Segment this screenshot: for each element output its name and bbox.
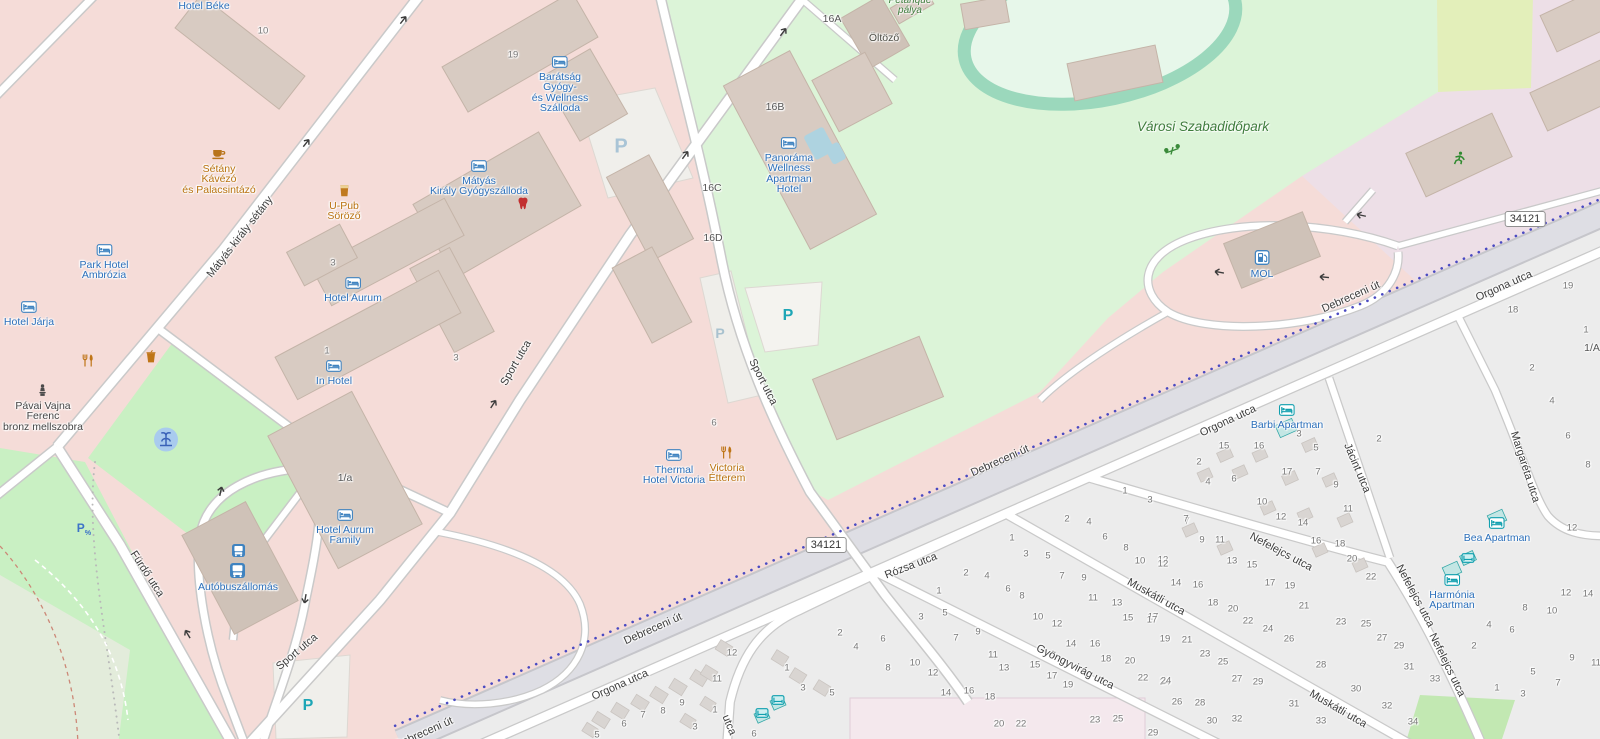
house-number: 22 <box>1366 572 1377 583</box>
bus2-icon <box>230 544 246 581</box>
house-number: 7 <box>1059 571 1064 582</box>
house-number: 11 <box>1343 504 1353 515</box>
setany-kavezo-es-palacsintazo[interactable]: SétányKávézóés Palacsintázó <box>182 148 256 195</box>
barbi-apartman[interactable]: Barbi Apartman <box>1251 404 1323 430</box>
street-label: Mátyás király sétány <box>205 194 276 280</box>
house-number: 11 <box>712 674 722 685</box>
house-number: 4 <box>984 571 989 582</box>
house-number: 6 <box>1102 532 1107 543</box>
house-number: 12 <box>1052 619 1063 630</box>
street-label: Rózsa utca <box>883 551 939 582</box>
house-number: 3 <box>1520 689 1525 700</box>
street-label: Debreceni út <box>969 443 1031 479</box>
house-number: 24 <box>1161 676 1172 687</box>
varosi-szabadidopark-label: Városi Szabadidőpark <box>1137 119 1269 134</box>
house-number: 1 <box>1583 325 1588 336</box>
house-number: 16A <box>823 13 842 25</box>
house-number: 20 <box>994 719 1005 730</box>
parking-icon[interactable]: P <box>715 325 724 341</box>
house-number: 6 <box>1231 474 1236 485</box>
house-number: 12 <box>928 668 939 679</box>
house-number: 2 <box>1471 641 1476 652</box>
house-number: 2 <box>1064 514 1069 525</box>
house-number: 5 <box>1313 443 1318 454</box>
house-number: 20 <box>1125 656 1136 667</box>
house-number: 17 <box>1147 615 1158 626</box>
pitch-runner-poi[interactable] <box>1453 151 1466 169</box>
house-number: 27 <box>1377 633 1388 644</box>
house-number: 12 <box>1276 512 1287 523</box>
poi-label-line: Ferenc <box>3 411 83 422</box>
parking-icon[interactable]: P <box>614 136 627 159</box>
house-number: 16D <box>703 232 722 244</box>
house-number: 7 <box>1315 467 1320 478</box>
parking-icon[interactable]: P <box>303 697 314 715</box>
poi-label-line: Söröző <box>327 211 360 222</box>
house-number: 2 <box>963 568 968 579</box>
house-number: 1 <box>712 705 717 716</box>
house-number: 5 <box>594 730 599 739</box>
hotel-jarja[interactable]: Hotel Járja <box>4 301 54 327</box>
cafe-icon <box>212 148 226 163</box>
house-number: 33 <box>1316 716 1327 727</box>
house-number: 3 <box>692 722 697 733</box>
thermal-hotel-victoria[interactable]: ThermalHotel Victoria <box>643 449 705 486</box>
house-number: 29 <box>1394 641 1405 652</box>
poi-label-line: Kávézó <box>182 174 256 185</box>
house-number: 10 <box>1033 612 1044 623</box>
house-number: 5 <box>1045 551 1050 562</box>
house-number: 18 <box>1208 598 1219 609</box>
map-labels-layer: Mátyás király sétánySport utcaSport utca… <box>0 0 1600 739</box>
road-ref-badge: 34121 <box>806 537 847 553</box>
house-number: 20 <box>1347 554 1358 565</box>
bedt-icon <box>1279 404 1295 419</box>
house-number: 9 <box>679 698 684 709</box>
house-number: 23 <box>1200 649 1211 660</box>
house-number: 2 <box>1196 457 1201 468</box>
bedt-icon <box>1444 574 1460 589</box>
house-number: 6 <box>1509 625 1514 636</box>
pavai-vajna-ferenc-bronz-mellszobra[interactable]: Pávai VajnaFerencbronz mellszobra <box>3 384 83 432</box>
house-number: 14 <box>1298 518 1309 529</box>
house-number: 1 <box>324 346 329 357</box>
street-label: Orgona utca <box>590 667 650 703</box>
house-number: 9 <box>1199 535 1204 546</box>
poi-label-line: Bea Apartman <box>1464 533 1531 544</box>
house-number: 19 <box>1063 680 1074 691</box>
house-number: 8 <box>1019 591 1024 602</box>
house-number: 16 <box>1193 580 1204 591</box>
house-number: 8 <box>1522 603 1527 614</box>
house-number: 1 <box>784 663 789 674</box>
street-label: Margaréta utca <box>1508 430 1542 504</box>
house-number: 18 <box>985 692 996 703</box>
poi-label-line: Hotel Béke <box>178 1 229 12</box>
street-label: Orgona utca <box>1474 268 1534 304</box>
house-number: 25 <box>1218 657 1229 668</box>
house-number: 1/A <box>1584 342 1600 354</box>
u-pub-sorozo[interactable]: U-PubSöröző <box>327 184 360 222</box>
dentist-poi[interactable] <box>518 197 529 214</box>
poi-label-line: Hotel Járja <box>4 317 54 328</box>
poi-label-line: Hotel <box>765 184 813 195</box>
house-number: 18 <box>1101 654 1112 665</box>
house-number: 4 <box>1205 477 1210 488</box>
house-number: 24 <box>1263 624 1274 635</box>
house-number: 6 <box>621 719 626 730</box>
parking-icon[interactable]: P <box>783 307 794 325</box>
house-number: 3 <box>453 353 458 364</box>
poi-label-line: MOL <box>1251 269 1274 280</box>
house-number: 33 <box>1430 674 1441 685</box>
street-label: Sport utca <box>746 357 779 407</box>
poi-label-line: Hotel Victoria <box>643 475 705 486</box>
house-number: 11 <box>1591 658 1600 669</box>
baratsag-gyogy-es-wellness-szalloda[interactable]: BarátságGyógy-és WellnessSzálloda <box>532 56 588 114</box>
house-number: 9 <box>975 627 980 638</box>
house-number: 29 <box>1253 677 1264 688</box>
restaurant-poi[interactable] <box>82 354 94 371</box>
street-label: Fürdő utca <box>128 549 167 600</box>
harmonia-apartman[interactable]: HarmóniaApartman <box>1429 574 1475 611</box>
house-number: 1 <box>1122 486 1127 497</box>
poi-label-line: Family <box>316 535 374 546</box>
area-label-line: Városi Szabadidőpark <box>1137 119 1269 134</box>
house-number: 28 <box>1316 660 1327 671</box>
poi-label-line: In Hotel <box>316 376 352 387</box>
house-number: 16 <box>964 686 975 697</box>
house-number: 3 <box>1147 495 1152 506</box>
street-label: Debreceni út <box>1320 279 1382 315</box>
bed-icon <box>345 277 361 292</box>
house-number: 4 <box>1486 620 1491 631</box>
autobuszallomas[interactable]: Autóbuszállomás <box>198 544 278 592</box>
house-number: 9 <box>1569 653 1574 664</box>
house-number: 4 <box>853 642 858 653</box>
house-number: 9 <box>1081 573 1086 584</box>
street-label: Debreceni út <box>393 715 455 739</box>
house-number: 16 <box>1090 639 1101 650</box>
house-number: 8 <box>660 706 665 717</box>
house-number: 5 <box>1530 667 1535 678</box>
apartment-poi[interactable] <box>772 695 785 709</box>
house-number: 13 <box>1112 598 1123 609</box>
street-label: Jácint utca <box>1341 441 1373 494</box>
house-number: 16 <box>1311 536 1322 547</box>
house-number: 22 <box>1138 673 1149 684</box>
house-number: 10 <box>1547 606 1558 617</box>
house-number: 10 <box>258 26 269 37</box>
house-number: 25 <box>1113 714 1124 725</box>
house-number: 8 <box>885 663 890 674</box>
house-number: 14 <box>1066 639 1077 650</box>
house-number: 14 <box>1583 589 1594 600</box>
poi-label-line: Szálloda <box>532 103 588 114</box>
house-number: 23 <box>1090 715 1101 726</box>
fountain-icon <box>154 427 179 455</box>
poi-label-line: Gyógy- <box>532 82 588 93</box>
house-number: 11 <box>1215 535 1225 546</box>
house-number: 23 <box>1336 617 1347 628</box>
house-number: 25 <box>1361 619 1372 630</box>
poi-label-line: Hotel Aurum <box>324 293 382 304</box>
house-number: 8 <box>1123 543 1128 554</box>
house-number: 12 <box>727 648 738 659</box>
hotel-beke[interactable]: Hotel Béke <box>178 1 229 12</box>
tooth-icon <box>518 197 529 213</box>
poi-label-line: Wellness <box>765 163 813 174</box>
poi-label-line: Király Gyógyszálloda <box>430 186 528 197</box>
bedt-icon <box>1489 517 1505 532</box>
house-number: 29 <box>1148 728 1159 739</box>
house-number: 1 <box>1494 683 1499 694</box>
house-number: 9 <box>1333 480 1338 491</box>
street-label: Sport utca <box>274 631 320 672</box>
house-number: 30 <box>1351 684 1362 695</box>
house-number: 19 <box>508 50 519 61</box>
house-number: 7 <box>1555 678 1560 689</box>
petanque-palya-label: Petanquepálya <box>889 0 932 16</box>
house-number: 13 <box>1227 556 1238 567</box>
house-number: 6 <box>1565 431 1570 442</box>
house-number: 12 <box>1561 588 1572 599</box>
house-number: 5 <box>942 608 947 619</box>
house-number: 12 <box>1567 523 1578 534</box>
fastfood-poi[interactable] <box>146 350 156 367</box>
house-number: 13 <box>999 663 1010 674</box>
poi-label-line: és Palacsintázó <box>182 185 256 196</box>
house-number: 3 <box>1023 549 1028 560</box>
runner-icon <box>1453 151 1466 168</box>
house-number: 15 <box>1247 560 1258 571</box>
house-number: 16C <box>702 182 721 194</box>
playground-icon <box>1164 143 1181 159</box>
house-number: 21 <box>1299 601 1310 612</box>
restaurant-icon <box>721 446 733 462</box>
street-label: Nefelejcs utca <box>1426 631 1467 698</box>
house-number: 15 <box>1123 613 1134 624</box>
house-number: 2 <box>1529 363 1534 374</box>
house-number: 15 <box>1219 441 1230 452</box>
poi-label-line: bronz mellszobra <box>3 422 83 433</box>
bed-icon <box>471 160 487 175</box>
mol[interactable]: MOL <box>1251 250 1274 279</box>
house-number: 11 <box>988 650 998 661</box>
street-label: Debreceni út <box>622 611 684 647</box>
house-number: 30 <box>1207 716 1218 727</box>
house-number: 26 <box>1284 634 1295 645</box>
house-number: 10 <box>910 658 921 669</box>
house-number: 11 <box>1088 593 1098 604</box>
poi-label-line: Ambrózia <box>79 270 128 281</box>
house-number: 4 <box>1549 396 1554 407</box>
house-number: 17 <box>1265 578 1276 589</box>
house-number: 6 <box>751 729 756 739</box>
house-number: 18 <box>1508 305 1519 316</box>
house-number: 27 <box>1232 674 1243 685</box>
bed-icon <box>552 56 568 71</box>
poi-label-line: Öltöző <box>869 33 899 44</box>
house-number: 10 <box>1135 556 1146 567</box>
house-number: 3 <box>800 683 805 694</box>
hotel-aurum-family[interactable]: Hotel AurumFamily <box>316 509 374 546</box>
bed-icon <box>666 449 682 464</box>
area-label-line: pálya <box>889 6 932 16</box>
house-number: 32 <box>1232 714 1243 725</box>
house-number: 31 <box>1404 662 1415 673</box>
panorama-wellness-apartman-hotel[interactable]: PanorámaWellnessApartmanHotel <box>765 137 813 195</box>
bed-icon <box>337 509 353 524</box>
house-number: 22 <box>1016 719 1027 730</box>
victoria-etterem[interactable]: VictoriaÉtterem <box>709 446 746 484</box>
house-number: 17 <box>1282 467 1293 478</box>
apartment-poi[interactable] <box>756 708 769 722</box>
bed-icon <box>781 137 797 152</box>
house-number: 17 <box>1047 671 1058 682</box>
house-number: 1 <box>936 586 941 597</box>
house-number: 21 <box>1182 635 1193 646</box>
house-number: 19 <box>1285 581 1296 592</box>
poi-label-line: Barbi Apartman <box>1251 420 1323 431</box>
fastfood-icon <box>146 350 156 366</box>
road-ref-badge: 34121 <box>1505 211 1546 227</box>
bedts-icon <box>1462 553 1475 566</box>
house-number: 31 <box>1289 699 1300 710</box>
house-number: 3 <box>918 612 923 623</box>
house-number: 4 <box>1086 517 1091 528</box>
house-number: 1 <box>1009 533 1014 544</box>
house-number: 2 <box>837 628 842 639</box>
house-number: 3 <box>330 258 335 269</box>
house-number: 7 <box>640 710 645 721</box>
house-number: 7 <box>953 633 958 644</box>
house-number: 10 <box>1257 497 1268 508</box>
bedts-icon <box>772 695 785 708</box>
apartment-poi[interactable] <box>1462 553 1475 567</box>
house-number: 7 <box>1183 514 1188 525</box>
house-number: 14 <box>941 688 952 699</box>
restaurant-icon <box>82 354 94 370</box>
house-number: 20 <box>1228 604 1239 615</box>
house-number: 5 <box>829 688 834 699</box>
oltozo[interactable]: Öltöző <box>869 33 899 44</box>
street-label: Sport utca <box>498 338 533 387</box>
fountain-poi[interactable] <box>154 427 179 456</box>
map-canvas[interactable]: Mátyás király sétánySport utcaSport utca… <box>0 0 1600 739</box>
street-label: Gyöngyvirág utca <box>1034 642 1116 692</box>
house-number: 34 <box>1408 717 1419 728</box>
house-number: 16B <box>766 101 785 113</box>
house-number: 19 <box>1563 281 1574 292</box>
house-number: 32 <box>1382 701 1393 712</box>
playground-poi[interactable] <box>1164 143 1181 160</box>
in-hotel[interactable]: In Hotel <box>316 360 352 386</box>
bedts-icon <box>756 708 769 721</box>
house-number: 15 <box>1030 660 1041 671</box>
house-number: 6 <box>880 634 885 645</box>
poi-label-line: Apartman <box>1429 600 1475 611</box>
house-number: 14 <box>1171 578 1182 589</box>
house-number: 6 <box>711 418 716 429</box>
house-number: 6 <box>1005 584 1010 595</box>
street-label: Orgona utca <box>1198 403 1258 439</box>
house-number: 28 <box>1195 698 1206 709</box>
bed-icon <box>326 360 342 375</box>
street-label: utca <box>720 713 739 737</box>
bed-icon <box>96 244 112 259</box>
house-number: 1/a <box>338 472 353 484</box>
beer-icon <box>339 184 349 200</box>
house-number: 12 <box>1158 559 1169 570</box>
park-hotel-ambrozia[interactable]: Park HotelAmbrózia <box>79 244 128 281</box>
bea-apartman[interactable]: Bea Apartman <box>1464 517 1531 543</box>
fuel-icon <box>1254 250 1269 268</box>
poi-label-line: Étterem <box>709 473 746 484</box>
hotel-aurum[interactable]: Hotel Aurum <box>324 277 382 303</box>
matyas-kiraly-gyogyszalloda[interactable]: MátyásKirály Gyógyszálloda <box>430 160 528 197</box>
house-number: 19 <box>1160 634 1171 645</box>
poi-label-line: Autóbuszállomás <box>198 582 278 593</box>
bed-icon <box>21 301 37 316</box>
house-number: 22 <box>1243 616 1254 627</box>
parking-icon[interactable]: P% <box>77 521 91 537</box>
statue-icon <box>38 384 47 400</box>
house-number: 2 <box>1376 434 1381 445</box>
house-number: 16 <box>1254 441 1265 452</box>
house-number: 18 <box>1335 539 1346 550</box>
house-number: 8 <box>1585 460 1590 471</box>
house-number: 26 <box>1172 697 1183 708</box>
